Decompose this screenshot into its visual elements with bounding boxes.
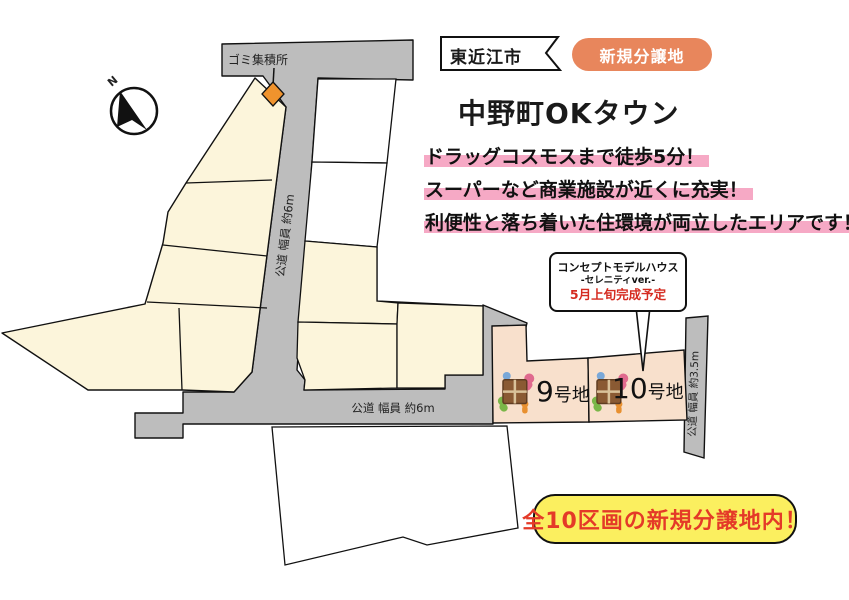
- garbage-label: ゴミ集積所: [228, 52, 288, 67]
- lot-10-label: 10号地: [612, 372, 684, 405]
- model-house-callout: コンセプトモデルハウス -セレニティver.- 5月上旬完成予定: [549, 252, 687, 312]
- parcel-cream-e: [298, 241, 398, 324]
- highlight-line-1: ドラッグコスモスまで徒歩5分！: [424, 144, 709, 171]
- parcel-white-boundary: [377, 247, 483, 306]
- city-label: 東近江市: [450, 43, 550, 67]
- total-lots-badge: 全10区画の新規分譲地内！: [533, 494, 797, 544]
- lot-10-number: 10: [612, 372, 648, 405]
- highlight-line-2: スーパーなど商業施設が近くに充実！: [424, 177, 753, 204]
- flyer-page: ゴミ集積所 公道 幅員 約6m 公道 幅員 約6m 公道 幅員 約3.5m N: [0, 0, 849, 600]
- svg-text:N: N: [105, 73, 120, 89]
- lot-9-label: 9号地: [536, 375, 590, 408]
- compass-north-icon: N: [105, 73, 157, 134]
- parcel-white-a: [312, 79, 396, 163]
- lot-9-number: 9: [536, 375, 554, 408]
- parcel-below-road: [272, 426, 518, 565]
- lot-9-suffix: 号地: [554, 381, 590, 407]
- new-sale-badge: 新規分譲地: [572, 38, 712, 71]
- road-bottom-label: 公道 幅員 約6m: [351, 401, 434, 415]
- callout-line-2: -セレニティver.-: [551, 275, 685, 287]
- highlight-line-3: 利便性と落ち着いた住環境が両立したエリアです！: [424, 210, 849, 237]
- parcel-cream-d: [397, 303, 483, 388]
- lot-10-suffix: 号地: [648, 378, 684, 404]
- callout-line-1: コンセプトモデルハウス: [551, 261, 685, 275]
- page-title: 中野町OKタウン: [458, 92, 718, 132]
- callout-line-3: 5月上旬完成予定: [551, 287, 685, 303]
- parcel-cream-f: [297, 322, 397, 390]
- parcel-white-b: [305, 162, 387, 247]
